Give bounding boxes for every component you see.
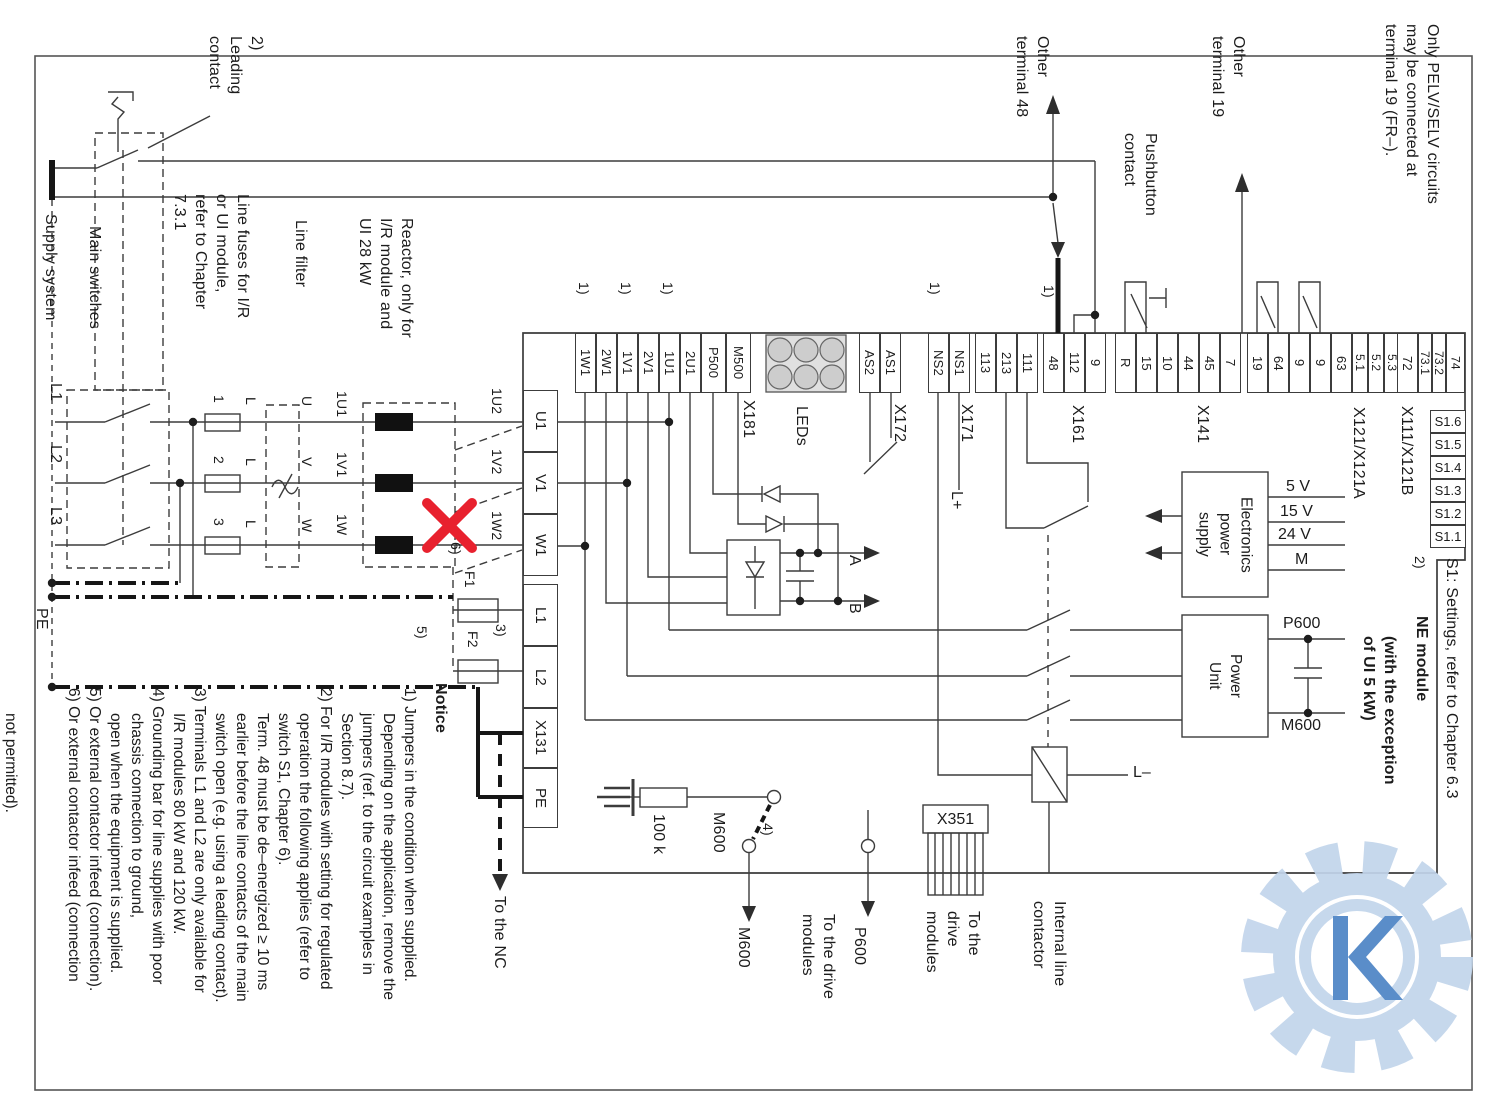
connector-label-x181: X181 xyxy=(738,400,759,530)
terminal-pin-label: 15 xyxy=(1139,356,1154,371)
note3-ref: 3) xyxy=(493,624,511,650)
notice-line-4: Section 8.7). xyxy=(336,713,357,1118)
main-switches-label: Main switches xyxy=(84,226,105,371)
terminal-pin-x121-6: 5.2 xyxy=(1368,333,1384,393)
connector-label-x161: X161 xyxy=(1067,405,1088,535)
terminal-pin-label: 111 xyxy=(1020,353,1035,373)
output-15v-label: 15 V xyxy=(1280,502,1325,522)
output-m-label: M xyxy=(1295,550,1325,570)
left-terminal-label: X131 xyxy=(532,720,549,755)
s1-switch-label: S1.3 xyxy=(1435,483,1462,498)
notice-line-18: not permitted). xyxy=(0,713,21,1118)
notice-heading: Notice xyxy=(430,683,451,753)
terminal-pin-label: R xyxy=(1118,358,1133,368)
jumper-ref-2: 1) xyxy=(618,282,636,308)
power-unit-label: Power Unit xyxy=(1182,615,1268,737)
terminal-pin-x141-1: 15 xyxy=(1136,333,1157,393)
s1-switch-label: S1.2 xyxy=(1435,506,1462,521)
reactor-in-1v1: 1V1 xyxy=(334,452,352,497)
terminal-pin-label: 10 xyxy=(1160,356,1175,371)
notice-line-15: open when the equipment is supplied. xyxy=(105,713,126,1118)
terminal-pin-label: 2V1 xyxy=(641,351,656,375)
terminal-pin-label: 7 xyxy=(1223,359,1238,366)
other-terminal-19-label: Other terminal 19 xyxy=(1207,36,1249,176)
left-terminal-label: L2 xyxy=(532,669,549,686)
s1-switch-s1-5: S1.5 xyxy=(1430,433,1466,456)
notice-line-3: jumpers (ref. to the circuit examples in xyxy=(357,713,378,1118)
terminal-pin-x121-2: 9 xyxy=(1289,333,1310,393)
terminal-pin-x181-4: 1U1 xyxy=(659,333,680,393)
filter-out-w: W xyxy=(299,519,317,539)
phase-l2-label: L2 xyxy=(45,445,66,477)
terminal-pin-x172-0: AS2 xyxy=(859,333,880,393)
l-mark-2: L xyxy=(243,458,261,478)
line-fuses-note: Line fuses for I/R or UI module, refer t… xyxy=(169,194,253,389)
terminal-pin-label: 63 xyxy=(1334,356,1349,371)
terminal-pin-label: 113 xyxy=(978,352,993,373)
terminal-pin-x141-5: 7 xyxy=(1220,333,1241,393)
resistor-100k-label: 100 k xyxy=(648,814,669,874)
terminal-pin-x171-1: NS1 xyxy=(949,333,970,393)
note6-ref: 6) xyxy=(448,542,466,568)
output-5v-label: 5 V xyxy=(1286,477,1326,497)
s1-switch-s1-6: S1.6 xyxy=(1430,410,1466,433)
connector-label-x172: X172 xyxy=(889,404,910,534)
terminal-pin-x161-1: 213 xyxy=(996,333,1017,393)
terminal-pin-x121-5: 5.1 xyxy=(1352,333,1368,393)
left-terminal-label: U1 xyxy=(532,411,549,430)
l-minus-label: L– xyxy=(1133,763,1173,783)
terminal-pin-x181-2: 1V1 xyxy=(617,333,638,393)
jumper-ref-3: 1) xyxy=(660,282,678,308)
terminal-pin-x161-5: 9 xyxy=(1085,333,1106,393)
notice-line-6: operation the following applies (refer t… xyxy=(294,713,315,1118)
fuse-f2-label: F2 xyxy=(465,631,483,657)
jumper-ref-1: 1) xyxy=(576,282,594,308)
electronics-power-supply-label-text: Electronics power supply xyxy=(1194,497,1257,573)
terminal-pin-x161-3: 48 xyxy=(1043,333,1064,393)
notice-line-2: Depending on the application, remove the xyxy=(378,713,399,1118)
s1-switch-label: S1.4 xyxy=(1435,460,1462,475)
terminal-pin-label: 48 xyxy=(1046,356,1061,371)
ne-module-exception: (with the exception of UI 5 kW) xyxy=(1358,636,1400,836)
fuse-1-label: 1 xyxy=(211,395,229,415)
to-drive-modules-x351: To the drive modules xyxy=(921,911,984,1023)
terminal-pin-x172-1: AS1 xyxy=(880,333,901,393)
terminal-pin-label: 73.1 xyxy=(1418,351,1432,375)
terminal-pin-x161-0: 113 xyxy=(975,333,996,393)
note4-ref: 4) xyxy=(760,823,778,849)
l-mark-3: L xyxy=(243,520,261,540)
internal-line-contactor-label: Internal line contactor xyxy=(1028,901,1070,1041)
terminal-pin-x141-0: R xyxy=(1115,333,1136,393)
terminal-pin-x111-3: 74 xyxy=(1446,333,1465,393)
terminal-pin-x181-7: M500 xyxy=(726,333,751,393)
terminal-pin-label: 213 xyxy=(999,352,1014,374)
left-terminal-w1: W1 xyxy=(523,514,558,576)
notice-line-11: 3) Terminals L1 and L2 are only availabl… xyxy=(189,688,210,1093)
s1-switch-s1-3: S1.3 xyxy=(1430,479,1466,502)
module-in-1v2: 1V2 xyxy=(489,449,507,494)
l-mark-1: L xyxy=(243,397,261,417)
pelv-note: Only PELV/SELV circuits may be connected… xyxy=(1380,24,1443,274)
connector-label-x121: X121/X121A xyxy=(1348,407,1369,537)
terminal-pin-x161-4: 112 xyxy=(1064,333,1085,393)
terminal-pin-label: 73.2 xyxy=(1432,351,1446,375)
terminal-pin-x181-1: 2W1 xyxy=(596,333,617,393)
other-terminal-48-label: Other terminal 48 xyxy=(1011,36,1053,171)
phase-l1-label: L1 xyxy=(45,383,66,415)
terminal-pin-label: NS2 xyxy=(931,350,946,376)
s1-switch-label: S1.1 xyxy=(1435,529,1462,544)
s1-switch-s1-4: S1.4 xyxy=(1430,456,1466,479)
x351-label-text: X351 xyxy=(937,809,974,830)
module-in-1u2: 1U2 xyxy=(489,388,507,433)
terminal-pin-x121-1: 64 xyxy=(1268,333,1289,393)
s1-switch-label: S1.5 xyxy=(1435,437,1462,452)
terminal-pin-x111-2: 73.2 xyxy=(1432,333,1446,393)
to-the-nc-label: To the NC xyxy=(489,896,510,1008)
s1-switch-label: S1.6 xyxy=(1435,414,1462,429)
fuse-f1-label: F1 xyxy=(462,571,480,597)
notice-line-5: 2) For I/R modules with setting for regu… xyxy=(315,688,336,1093)
terminal-pin-x181-5: 2U1 xyxy=(680,333,701,393)
terminal-pin-x111-1: 73.1 xyxy=(1418,333,1432,393)
reactor-in-1u1: 1U1 xyxy=(334,391,352,436)
line-filter-label: Line filter xyxy=(290,220,311,315)
terminal-pin-label: 9 xyxy=(1292,359,1307,366)
supply-system-label: Supply system xyxy=(40,214,61,364)
terminal-pin-label: 2W1 xyxy=(599,349,614,376)
notice-line-10: switch open (e.g. using a leading contac… xyxy=(210,713,231,1118)
terminal-pin-x171-0: NS2 xyxy=(928,333,949,393)
terminal-pin-label: AS1 xyxy=(883,350,898,375)
m600-cap-label: M600 xyxy=(1281,716,1331,736)
reactor-note: Reactor, only for I/R module and UI 28 k… xyxy=(354,218,417,388)
notice-line-7: switch S1, Chapter 6). xyxy=(273,713,294,1118)
notice-line-8: Term. 48 must be de–energized ≥ 10 ms xyxy=(252,713,273,1118)
terminal-pin-x121-3: 9 xyxy=(1310,333,1331,393)
output-24v-label: 24 V xyxy=(1278,525,1323,545)
left-terminal-label: PE xyxy=(532,788,549,808)
filter-out-u: U xyxy=(299,396,317,416)
terminal-pin-x121-4: 63 xyxy=(1331,333,1352,393)
p600-cap-label: P600 xyxy=(1283,614,1333,634)
notice-line-13: 4) Grounding bar for line supplies with … xyxy=(147,688,168,1093)
terminal-pin-x161-2: 111 xyxy=(1017,333,1038,393)
s1-note-ref: 2) xyxy=(1412,556,1430,582)
terminal-pin-label: 1U1 xyxy=(662,351,677,375)
s1-settings-note: S1: Settings, refer to Chapter 6.3 xyxy=(1441,558,1462,858)
terminal-pin-label: NS1 xyxy=(952,350,967,376)
terminal-pin-label: 112 xyxy=(1067,352,1082,373)
bus-b-label: B xyxy=(844,603,865,627)
fuse-3-label: 3 xyxy=(211,518,229,538)
pe-label: PE xyxy=(31,608,52,644)
terminal-pin-label: 1W1 xyxy=(578,349,593,376)
left-terminal-u1: U1 xyxy=(523,390,558,452)
jumper-ref-4: 1) xyxy=(927,282,945,308)
wiring-diagram-page: 1W12W11V12V11U12U1P500M500AS2AS1NS2NS111… xyxy=(0,0,1500,1111)
terminal-pin-x141-3: 44 xyxy=(1178,333,1199,393)
s1-switch-s1-2: S1.2 xyxy=(1430,502,1466,525)
left-terminal-label: W1 xyxy=(532,534,549,557)
terminal-pin-x141-4: 45 xyxy=(1199,333,1220,393)
terminal-pin-x181-6: P500 xyxy=(701,333,726,393)
left-terminal-l2: L2 xyxy=(523,646,558,708)
terminal-pin-x141-2: 10 xyxy=(1157,333,1178,393)
module-in-1w2: 1W2 xyxy=(489,511,507,556)
notice-line-17: 6) Or external contactor infeed (connect… xyxy=(63,688,84,1093)
terminal-pin-label: AS2 xyxy=(862,350,877,375)
bus-a-label: A xyxy=(844,555,865,579)
m600-below-label: M600 xyxy=(733,927,754,989)
terminal-pin-label: 64 xyxy=(1271,356,1286,371)
terminal-pin-label: 5.1 xyxy=(1353,354,1367,371)
pushbutton-contact-label: Pushbutton contact xyxy=(1119,133,1161,283)
reactor-in-1w: 1W xyxy=(334,514,352,559)
left-terminal-v1: V1 xyxy=(523,452,558,514)
terminal-pin-x121-0: 19 xyxy=(1247,333,1268,393)
ne-module-title: NE module xyxy=(1411,616,1432,756)
notice-line-16: 5) Or external contactor infeed (connect… xyxy=(84,688,105,1093)
terminal-pin-label: 9 xyxy=(1088,359,1103,366)
terminal-pin-x181-0: 1W1 xyxy=(575,333,596,393)
phase-l3-label: L3 xyxy=(45,507,66,539)
terminal-pin-label: 5.2 xyxy=(1369,354,1383,371)
note5-ref: 5) xyxy=(414,626,432,652)
left-terminal-label: V1 xyxy=(532,474,549,492)
terminal-pin-x111-0: 72 xyxy=(1397,333,1418,393)
left-terminal-x131: X131 xyxy=(523,708,558,768)
power-unit-label-text: Power Unit xyxy=(1204,654,1246,698)
notice-line-1: 1) Jumpers in the condition when supplie… xyxy=(399,688,420,1093)
terminal-pin-label: 72 xyxy=(1400,356,1415,371)
terminal-pin-label: 19 xyxy=(1250,356,1265,371)
terminal-pin-label: 9 xyxy=(1313,359,1328,366)
connector-label-x111: X111/X121B xyxy=(1396,406,1417,536)
s1-switch-s1-1: S1.1 xyxy=(1430,525,1466,548)
terminal-pin-label: 1V1 xyxy=(620,351,635,375)
notice-line-12: I/R modules 80 kW and 120 kW. xyxy=(168,713,189,1118)
terminal-pin-label: 2U1 xyxy=(683,351,698,375)
left-terminal-label: L1 xyxy=(532,607,549,624)
terminal-pin-label: P500 xyxy=(706,347,721,378)
l-plus-label: L+ xyxy=(946,491,967,525)
labels-layer: 1W12W11V12V11U12U1P500M500AS2AS1NS2NS111… xyxy=(0,0,1500,1111)
filter-out-v: V xyxy=(299,457,317,477)
leading-contact-label: 2) Leading contact xyxy=(204,36,267,146)
terminal-pin-label: M500 xyxy=(731,346,746,379)
terminal-pin-x181-3: 2V1 xyxy=(638,333,659,393)
notice-line-9: earlier before the line contacts of the … xyxy=(231,713,252,1118)
electronics-power-supply-label: Electronics power supply xyxy=(1182,472,1268,597)
left-terminal-l1: L1 xyxy=(523,584,558,646)
terminal-pin-label: 44 xyxy=(1181,356,1196,371)
x351-label: X351 xyxy=(923,805,988,833)
jumper-ref-48: 1) xyxy=(1041,285,1059,311)
notice-line-14: chassis connection to ground, xyxy=(126,713,147,1118)
connector-label-leds: LEDs xyxy=(791,406,812,536)
fuse-2-label: 2 xyxy=(211,456,229,476)
p600-below-label: P600 xyxy=(849,927,870,989)
terminal-pin-label: 45 xyxy=(1202,356,1217,371)
to-drive-modules-p600: To the drive modules xyxy=(797,914,839,1026)
m600-internal-label: M600 xyxy=(708,812,729,874)
terminal-pin-label: 74 xyxy=(1449,356,1463,370)
left-terminal-pe: PE xyxy=(523,768,558,828)
